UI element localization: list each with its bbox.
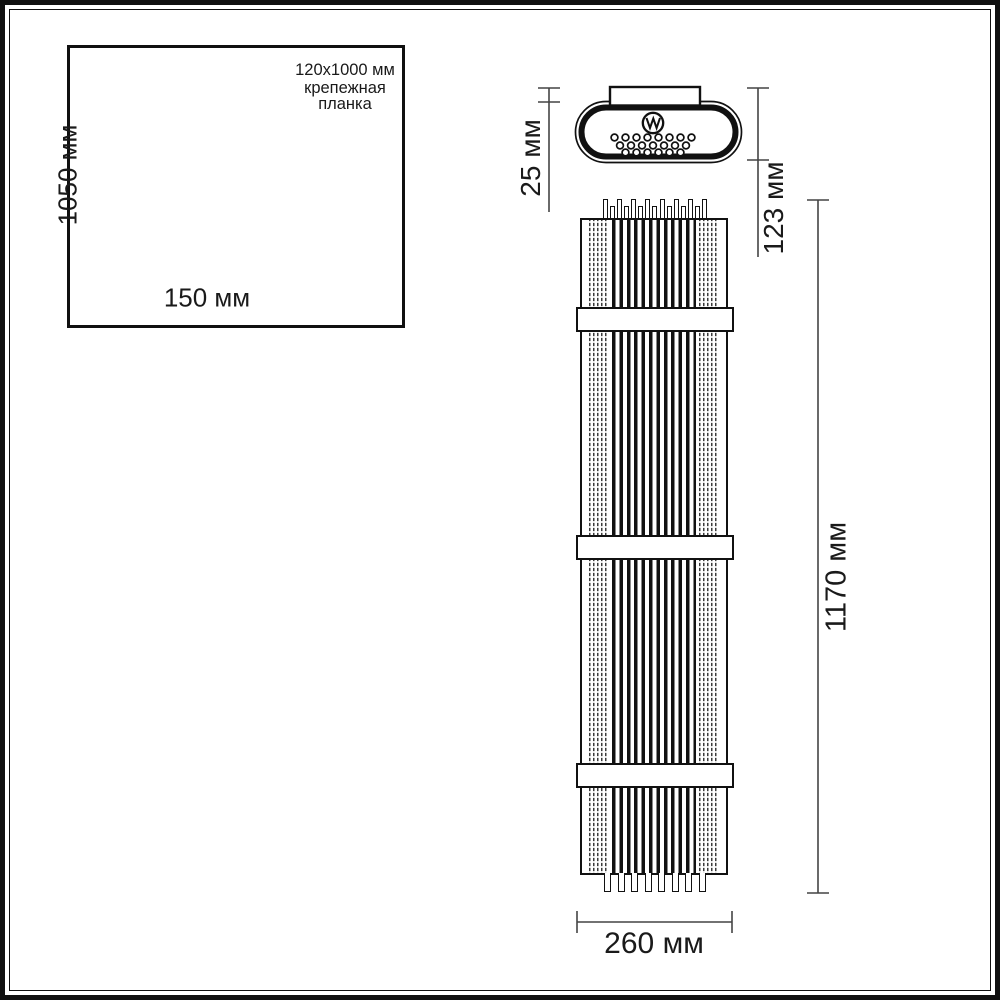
lamp-band-bottom [576, 763, 734, 788]
lamp-width-dim-label: 260 мм [604, 927, 704, 961]
plate-note-size: 120x1000 мм [292, 61, 398, 80]
inset-height-dim-label: 1050 мм [53, 125, 84, 226]
lamp-bottom-rods [604, 873, 706, 892]
lamp-top-view [576, 87, 742, 163]
lamp-socket-icon [643, 113, 663, 133]
plate-note-word2: планка [292, 97, 398, 112]
top-view-wall-bracket [610, 87, 700, 106]
lamp-band-middle [576, 535, 734, 560]
lamp-height-dim-label: 1170 мм [821, 522, 854, 632]
lamp-crown-rods [603, 199, 707, 220]
mounting-plate-note: 120x1000 мм крепежная планка [292, 61, 398, 112]
technical-drawing-page: 1050 мм 150 мм 120x1000 мм крепежная пла… [0, 0, 1000, 1000]
plate-depth-dim-label: 25 мм [515, 119, 547, 196]
fixture-depth-dim-label: 123 мм [758, 162, 790, 255]
lamp-band-top [576, 307, 734, 332]
crystal-rod-dots [611, 134, 695, 156]
inset-width-dim-label: 150 мм [164, 283, 250, 314]
